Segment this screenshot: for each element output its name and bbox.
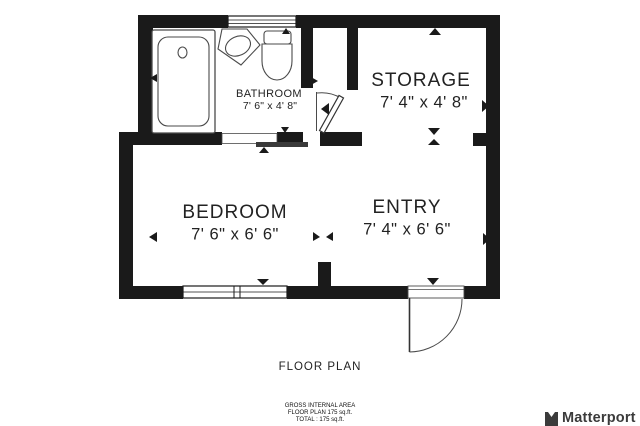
floor-plan-page: BATHROOM 7' 6" x 4' 8" STORAGE 7' 4" x 4… — [0, 0, 640, 426]
arrow-right-icon — [311, 77, 318, 85]
arrow-right-icon — [313, 232, 320, 241]
arrow-up-icon — [428, 139, 440, 145]
matterport-logo-text: Matterport — [562, 411, 636, 426]
page-title: FLOOR PLAN — [279, 361, 362, 373]
arrow-left-icon — [326, 232, 333, 241]
wall-bottom-right — [464, 286, 500, 299]
gross-internal-area-note: GROSS INTERNAL AREA FLOOR PLAN 175 sq.ft… — [285, 403, 355, 424]
bedroom-window — [183, 286, 287, 298]
matterport-logo: Matterport — [545, 411, 636, 426]
bathtub-icon — [152, 30, 215, 133]
sink-icon — [218, 29, 260, 65]
arrow-down-icon — [428, 128, 440, 135]
footer-line-1: GROSS INTERNAL AREA — [285, 403, 355, 410]
arrow-left-icon — [149, 232, 157, 242]
wall-top-right — [296, 15, 500, 28]
bathroom-window — [228, 16, 296, 27]
bathroom-hinged-door — [317, 92, 344, 133]
wall-bedroom-entry-stub — [318, 262, 331, 299]
arrow-up-icon — [429, 28, 441, 35]
wall-divider-d — [473, 133, 487, 146]
bathroom-dimensions: 7' 6" x 4' 8" — [243, 100, 297, 112]
storage-dimensions: 7' 4" x 4' 8" — [380, 94, 468, 113]
footer-line-3: TOTAL : 175 sq.ft. — [285, 417, 355, 424]
arrow-left-icon — [321, 103, 329, 115]
wall-bath-storage — [347, 28, 358, 90]
wall-divider-c — [320, 132, 362, 146]
entry-label: ENTRY — [372, 197, 441, 219]
entry-door — [408, 286, 464, 352]
toilet-icon — [262, 31, 292, 80]
arrow-down-icon — [427, 278, 439, 285]
bedroom-label: BEDROOM — [182, 202, 287, 224]
wall-left-upper — [138, 15, 153, 139]
bathroom-label: BATHROOM — [236, 88, 302, 100]
entry-dimensions: 7' 4" x 6' 6" — [363, 221, 451, 240]
storage-label: STORAGE — [371, 70, 471, 92]
wall-right — [486, 15, 500, 299]
bedroom-dimensions: 7' 6" x 6' 6" — [191, 226, 279, 245]
wall-divider-a — [119, 132, 222, 145]
wall-left-lower — [119, 132, 133, 299]
arrow-down-icon — [257, 279, 269, 285]
arrow-up-icon — [259, 147, 269, 153]
footer-line-2: FLOOR PLAN 175 sq.ft. — [285, 410, 355, 417]
wall-bottom-mid — [287, 286, 408, 299]
